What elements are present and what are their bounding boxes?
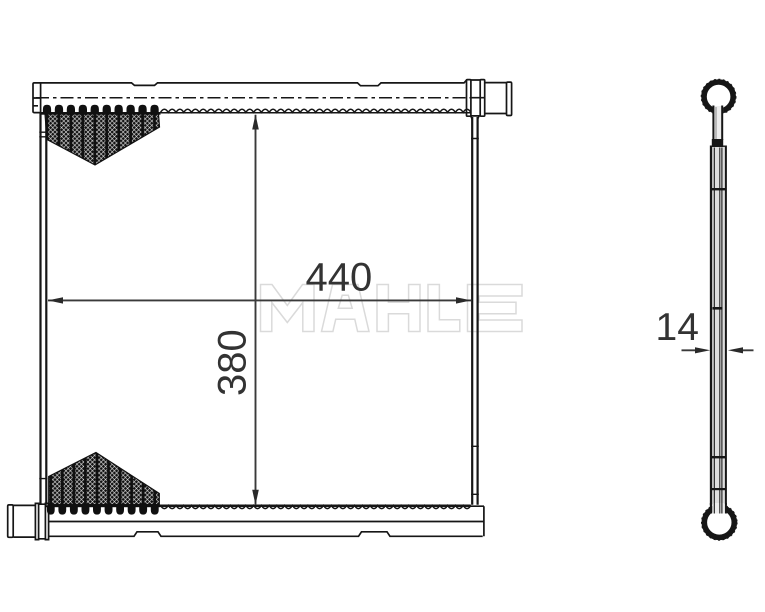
svg-text:380: 380 [211,329,255,396]
svg-text:440: 440 [306,255,373,299]
svg-text:14: 14 [656,306,699,349]
